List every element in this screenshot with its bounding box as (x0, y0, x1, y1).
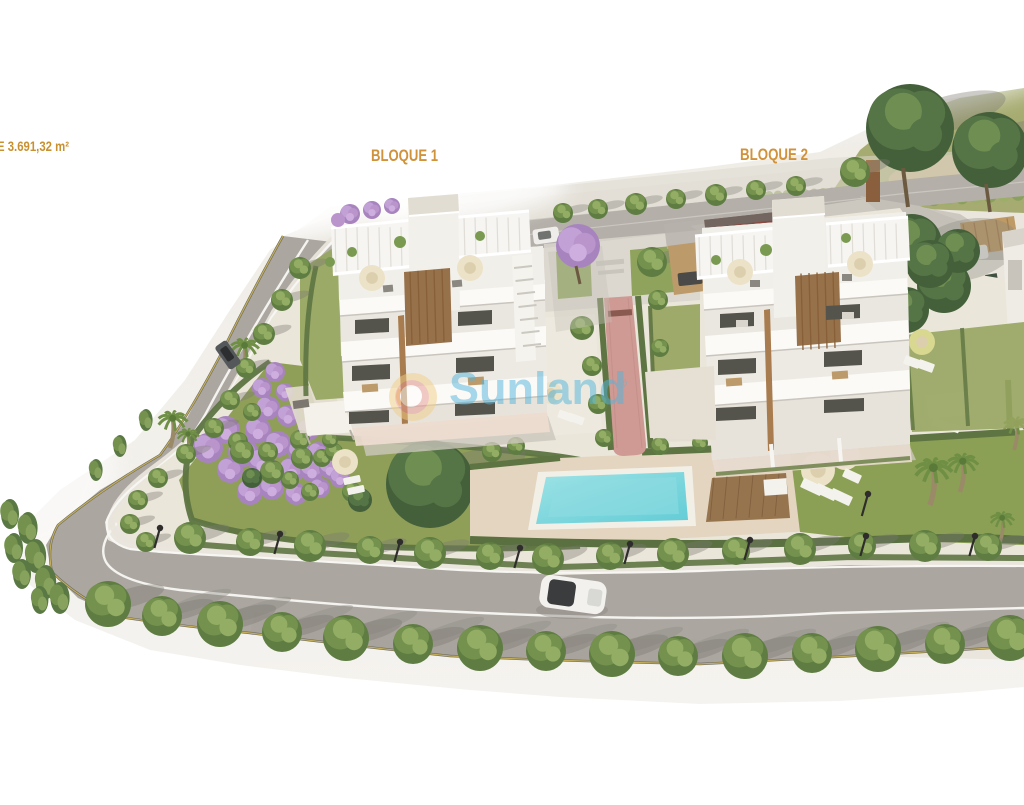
svg-text:BLOQUE 2: BLOQUE 2 (740, 145, 808, 164)
svg-text:BLOQUE 1: BLOQUE 1 (371, 146, 438, 165)
svg-text:Sunland: Sunland (449, 363, 627, 414)
svg-text:E 3.691,32 m²: E 3.691,32 m² (0, 138, 69, 154)
svg-text:®: ® (618, 376, 627, 390)
